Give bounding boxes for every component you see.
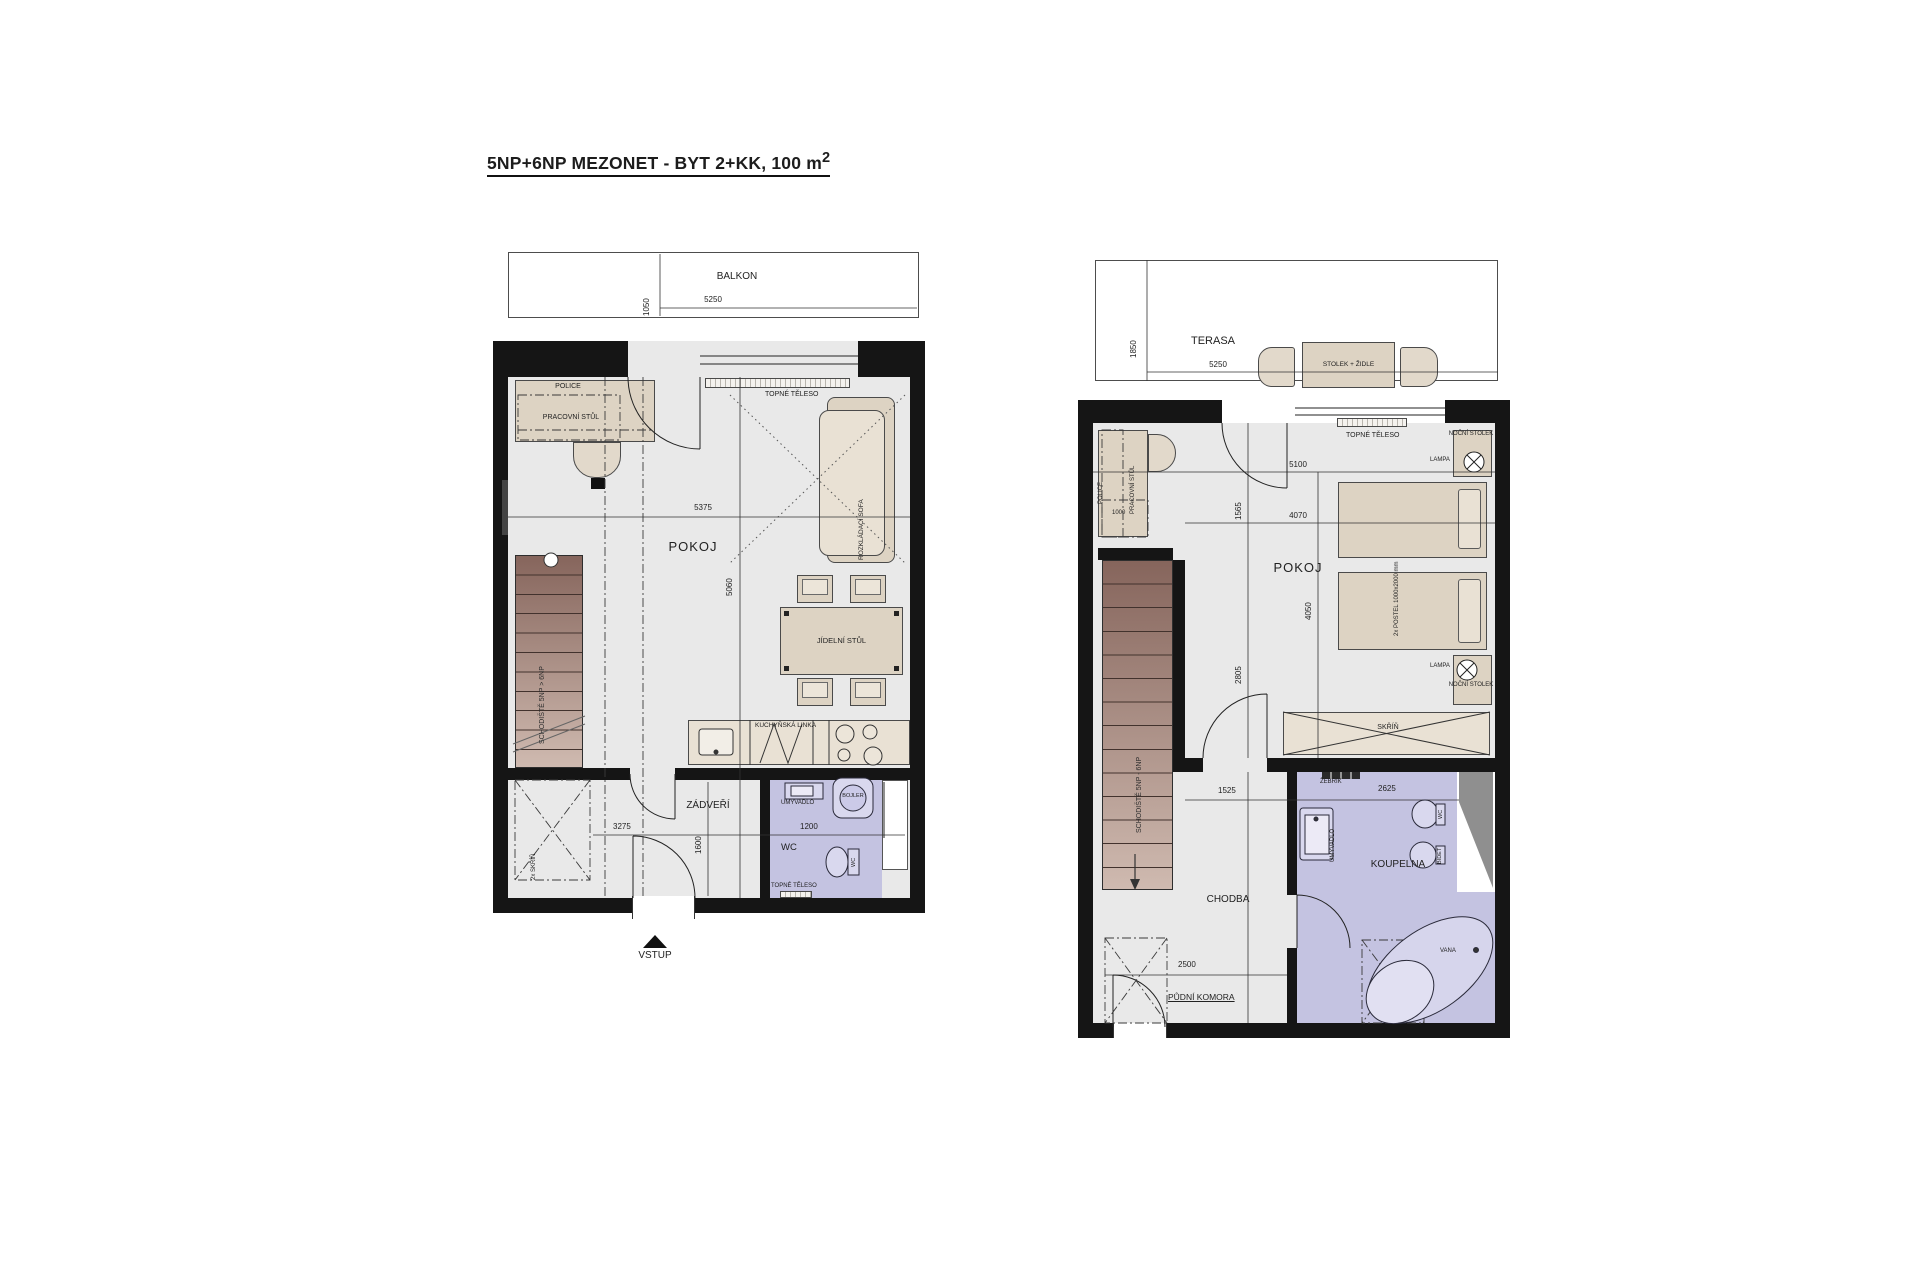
dim-4050: 4050 (1305, 576, 1313, 620)
staircase-label: SCHODIŠTĚ 5NP > 6NP (539, 584, 546, 744)
dim-balcony-depth: 1050 (643, 276, 651, 316)
hall-label: ZÁDVEŘÍ (668, 801, 748, 812)
ladder-icon (1322, 772, 1360, 779)
floorplan-page: 5NP+6NP MEZONET - BYT 2+KK, 100 m2 BALKO… (0, 0, 1920, 1281)
plan6-linework-svg (1078, 258, 1510, 1048)
bathtub-label: VANA (1440, 948, 1456, 954)
staircase-label: SCHODIŠTĚ 5NP - 6NP (1136, 658, 1143, 833)
shelf-label: POLICE (1098, 454, 1104, 504)
lamp-bottom-label: LAMPA (1430, 663, 1450, 669)
stair-symbols (513, 553, 585, 752)
dining-table-bolts (784, 611, 899, 671)
corridor-label: CHODBA (1198, 895, 1258, 906)
desk-label: PRACOVNÍ STŮL (526, 414, 616, 421)
plan5-linework-svg (493, 252, 928, 967)
entrance-label: VSTUP (630, 951, 680, 962)
dim-5100: 5100 (1273, 461, 1323, 469)
terrace-label: TERASA (1183, 336, 1243, 348)
dim-1565: 1565 (1235, 480, 1243, 520)
nightstand-top-label: NOČNÍ STOLEK (1448, 431, 1494, 437)
sofa-foldout-lines (730, 395, 905, 563)
dim-room-width: 5375 (673, 504, 733, 512)
dimension-lines (1093, 260, 1498, 1023)
dim-4070: 4070 (1273, 512, 1323, 520)
boiler-label: BOJLER (834, 794, 872, 800)
lamp-icons (1457, 452, 1484, 680)
dim-desk: 1000 (1112, 510, 1125, 516)
radiator-label: TOPNÉ TĚLESO (1346, 432, 1399, 439)
entrance-arrow-icon (643, 935, 667, 948)
wc-room-label: WC (781, 843, 797, 853)
doors-windows (1113, 408, 1445, 1027)
wardrobe-label: 2x SKŘÍŇ (531, 818, 537, 880)
plan-5np: BALKON 5250 1050 SCHODIŠTĚ 5NP > 6NP POL… (493, 252, 928, 967)
dim-2805: 2805 (1235, 640, 1243, 684)
balcony-label: BALKON (692, 272, 782, 283)
wc-radiator-label: TOPNÉ TĚLESO (771, 883, 817, 889)
wardrobe-label: SKŘÍŇ (1363, 724, 1413, 731)
kitchen-label: KUCHYŇSKÁ LINKA (755, 723, 816, 730)
wardrobe-cross (1283, 712, 1490, 755)
desk-label: PRACOVNÍ STŮL (1130, 446, 1136, 514)
room-label-pokoj: POKOJ (653, 540, 733, 554)
dim-wc-width: 1200 (800, 823, 818, 831)
shelf-label: POLICE (533, 383, 603, 390)
page-title: 5NP+6NP MEZONET - BYT 2+KK, 100 m2 (487, 150, 830, 177)
washbasin-label: UMYVADLO (781, 800, 814, 806)
dim-hall-width: 3275 (613, 823, 631, 831)
toilet-label: WC (1439, 803, 1445, 819)
attic-storage-label: PŮDNÍ KOMORA (1168, 993, 1235, 1002)
dim-1525: 1525 (1218, 787, 1236, 795)
radiator-label: TOPNÉ TĚLESO (765, 391, 818, 398)
bathroom-label: KOUPELNA (1356, 860, 1440, 871)
dim-balcony-width: 5250 (683, 296, 743, 304)
plan-6np: TERASA 5250 1850 STOLEK + ŽIDLE SCHODIŠT… (1078, 258, 1510, 1048)
lamp-top-label: LAMPA (1430, 457, 1450, 463)
dim-terrace-depth: 1850 (1130, 314, 1138, 358)
stair-arrow (1130, 854, 1140, 890)
toilet-label: WC (852, 851, 858, 867)
dim-2625: 2625 (1378, 785, 1396, 793)
nightstand-bottom-label: NOČNÍ STOLEK (1448, 682, 1494, 688)
room-label-pokoj: POKOJ (1258, 561, 1338, 575)
sofa-label: ROZKLÁDACÍ SOFA (859, 448, 866, 560)
dim-terrace-width: 5250 (1188, 361, 1248, 369)
dim-hall-depth: 1600 (695, 818, 703, 854)
dim-2500: 2500 (1178, 961, 1196, 969)
beds-label: 2x POSTEL 1000x2000 mm (1394, 524, 1400, 636)
dim-room-height: 5060 (726, 552, 734, 596)
washbasin-label: UMYVADLO (1330, 810, 1336, 862)
ladder-label: ŽEBŘÍK (1320, 779, 1342, 785)
